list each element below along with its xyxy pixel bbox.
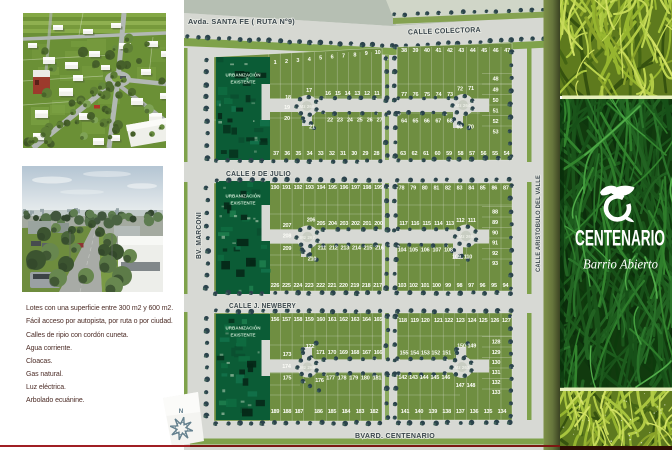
- svg-text:127: 127: [502, 318, 511, 324]
- svg-text:CALLE ARISTOBULO DEL VALLE: CALLE ARISTOBULO DEL VALLE: [535, 175, 542, 272]
- svg-text:53: 53: [493, 130, 499, 136]
- svg-text:132: 132: [492, 380, 501, 386]
- svg-text:96: 96: [480, 283, 486, 289]
- svg-text:15: 15: [335, 91, 341, 97]
- svg-text:86: 86: [491, 186, 497, 192]
- svg-text:91: 91: [492, 241, 498, 247]
- svg-text:156: 156: [271, 317, 280, 323]
- svg-text:140: 140: [415, 409, 424, 415]
- svg-text:170: 170: [328, 350, 337, 356]
- svg-text:190: 190: [271, 185, 280, 191]
- svg-text:102: 102: [409, 283, 418, 289]
- svg-text:159: 159: [305, 317, 314, 323]
- svg-text:30: 30: [351, 151, 357, 157]
- svg-text:40: 40: [424, 48, 430, 54]
- svg-text:38: 38: [401, 48, 407, 54]
- svg-text:152: 152: [431, 351, 440, 357]
- svg-text:205: 205: [317, 221, 326, 227]
- svg-text:139: 139: [429, 409, 438, 415]
- svg-text:51: 51: [493, 109, 499, 115]
- svg-text:186: 186: [314, 409, 323, 415]
- svg-text:19: 19: [284, 105, 290, 111]
- svg-text:27: 27: [377, 118, 383, 124]
- svg-text:39: 39: [413, 48, 419, 54]
- svg-text:Barrio Abierto: Barrio Abierto: [583, 257, 658, 272]
- svg-text:32: 32: [329, 151, 335, 157]
- svg-text:184: 184: [342, 409, 352, 415]
- svg-text:6: 6: [331, 55, 334, 61]
- svg-text:172: 172: [306, 344, 315, 350]
- svg-text:43: 43: [458, 48, 464, 54]
- svg-text:222: 222: [316, 283, 325, 289]
- svg-text:194: 194: [317, 185, 327, 191]
- svg-text:Mz 268: Mz 268: [300, 365, 316, 370]
- svg-text:206: 206: [307, 218, 316, 224]
- svg-text:3: 3: [296, 58, 299, 64]
- svg-text:153: 153: [421, 351, 430, 357]
- svg-text:72: 72: [457, 87, 463, 93]
- svg-text:93: 93: [492, 261, 498, 267]
- svg-text:101: 101: [421, 283, 430, 289]
- svg-text:87: 87: [503, 186, 509, 192]
- svg-text:143: 143: [409, 375, 418, 381]
- svg-text:177: 177: [326, 376, 335, 382]
- svg-text:220: 220: [339, 283, 348, 289]
- svg-text:105: 105: [409, 248, 418, 254]
- svg-text:142: 142: [398, 375, 407, 381]
- svg-text:134: 134: [498, 409, 508, 415]
- svg-text:106: 106: [421, 248, 430, 254]
- svg-text:137: 137: [456, 409, 465, 415]
- svg-text:126: 126: [491, 318, 500, 324]
- svg-text:31: 31: [340, 151, 346, 157]
- svg-text:213: 213: [341, 246, 350, 252]
- svg-text:166: 166: [374, 350, 383, 356]
- svg-text:104: 104: [398, 248, 408, 254]
- svg-text:124: 124: [468, 318, 478, 324]
- svg-text:118: 118: [399, 318, 407, 324]
- svg-text:168: 168: [351, 350, 360, 356]
- svg-text:218: 218: [362, 283, 371, 289]
- svg-text:122: 122: [445, 318, 454, 324]
- svg-text:196: 196: [340, 185, 349, 191]
- svg-text:110: 110: [464, 255, 472, 261]
- svg-text:EXISTENTE: EXISTENTE: [231, 333, 256, 338]
- svg-text:90: 90: [492, 230, 498, 236]
- svg-text:191: 191: [282, 185, 291, 191]
- svg-text:BV. MARCONI: BV. MARCONI: [196, 212, 203, 259]
- svg-text:8: 8: [353, 52, 356, 58]
- svg-text:69: 69: [457, 125, 463, 131]
- svg-text:52: 52: [493, 119, 499, 125]
- svg-text:131: 131: [492, 370, 501, 376]
- svg-text:195: 195: [328, 185, 337, 191]
- svg-text:174: 174: [282, 364, 292, 370]
- svg-text:171: 171: [316, 350, 325, 356]
- svg-text:203: 203: [340, 221, 349, 227]
- svg-text:202: 202: [351, 221, 360, 227]
- svg-text:216: 216: [375, 246, 384, 252]
- svg-text:66: 66: [424, 118, 430, 124]
- svg-text:5: 5: [319, 56, 322, 62]
- svg-text:217: 217: [373, 283, 382, 289]
- svg-text:78: 78: [399, 186, 405, 192]
- svg-text:92: 92: [492, 251, 498, 257]
- svg-text:169: 169: [339, 350, 348, 356]
- svg-text:97: 97: [468, 283, 474, 289]
- svg-text:65: 65: [413, 118, 419, 124]
- svg-text:115: 115: [423, 221, 431, 227]
- svg-text:163: 163: [351, 317, 360, 323]
- svg-text:100: 100: [432, 283, 441, 289]
- svg-text:EXISTENTE: EXISTENTE: [231, 201, 256, 206]
- svg-text:146: 146: [442, 375, 451, 381]
- svg-text:67: 67: [435, 118, 441, 124]
- svg-text:198: 198: [363, 185, 372, 191]
- svg-text:CALLE J. NEWBERY: CALLE J. NEWBERY: [229, 301, 296, 310]
- svg-text:79: 79: [410, 186, 416, 192]
- svg-text:210: 210: [308, 257, 317, 263]
- svg-text:215: 215: [364, 246, 373, 252]
- svg-text:36: 36: [284, 151, 290, 157]
- svg-text:211: 211: [318, 246, 326, 252]
- svg-text:16: 16: [325, 91, 331, 97]
- svg-text:33: 33: [318, 151, 324, 157]
- svg-text:73: 73: [447, 92, 453, 98]
- svg-text:22: 22: [327, 118, 333, 124]
- svg-text:56: 56: [481, 151, 487, 157]
- svg-text:185: 185: [328, 409, 337, 415]
- svg-text:50: 50: [493, 98, 499, 104]
- svg-text:9: 9: [365, 51, 368, 57]
- svg-text:167: 167: [362, 350, 371, 356]
- svg-text:162: 162: [339, 317, 348, 323]
- svg-text:N: N: [179, 408, 184, 415]
- svg-text:148: 148: [467, 383, 476, 389]
- svg-text:71: 71: [468, 86, 474, 92]
- svg-text:145: 145: [431, 375, 440, 381]
- svg-text:Avda. SANTA FE ( RUTA Nº9): Avda. SANTA FE ( RUTA Nº9): [188, 17, 295, 26]
- svg-text:209: 209: [283, 246, 292, 252]
- svg-text:155: 155: [400, 351, 409, 357]
- svg-text:EXISTENTE: EXISTENTE: [231, 80, 256, 85]
- svg-text:201: 201: [363, 221, 372, 227]
- svg-text:221: 221: [328, 283, 337, 289]
- svg-text:Mz 264: Mz 264: [455, 103, 471, 108]
- svg-text:107: 107: [433, 248, 442, 254]
- svg-text:28: 28: [374, 151, 380, 157]
- svg-text:2: 2: [285, 59, 288, 65]
- svg-text:42: 42: [447, 48, 453, 54]
- svg-text:BVARD. CENTENARIO: BVARD. CENTENARIO: [355, 431, 435, 440]
- svg-text:25: 25: [357, 118, 363, 124]
- svg-text:158: 158: [294, 317, 303, 323]
- svg-text:59: 59: [446, 151, 452, 157]
- svg-text:178: 178: [338, 376, 347, 382]
- svg-text:Mz 265: Mz 265: [458, 234, 474, 239]
- svg-text:147: 147: [456, 383, 465, 389]
- svg-text:208: 208: [283, 234, 292, 240]
- svg-text:55: 55: [492, 151, 498, 157]
- svg-text:182: 182: [370, 409, 379, 415]
- svg-text:181: 181: [373, 376, 382, 382]
- svg-text:89: 89: [492, 220, 498, 226]
- svg-text:CENTENARIO: CENTENARIO: [575, 226, 665, 251]
- svg-text:175: 175: [283, 376, 292, 382]
- svg-text:129: 129: [492, 350, 501, 356]
- svg-text:165: 165: [374, 317, 383, 323]
- svg-text:77: 77: [401, 92, 407, 98]
- svg-text:29: 29: [363, 151, 369, 157]
- svg-text:109: 109: [452, 255, 461, 261]
- svg-text:164: 164: [362, 317, 372, 323]
- svg-text:48: 48: [493, 77, 499, 83]
- svg-text:75: 75: [424, 92, 430, 98]
- svg-text:116: 116: [411, 221, 419, 227]
- svg-text:23: 23: [337, 118, 343, 124]
- svg-text:113: 113: [446, 221, 454, 227]
- svg-text:193: 193: [305, 185, 314, 191]
- svg-text:133: 133: [492, 390, 501, 396]
- svg-text:154: 154: [410, 351, 420, 357]
- svg-text:214: 214: [352, 246, 362, 252]
- svg-text:58: 58: [458, 151, 464, 157]
- svg-text:17: 17: [306, 88, 312, 94]
- svg-text:125: 125: [479, 318, 488, 324]
- svg-text:1: 1: [274, 60, 277, 66]
- svg-text:11: 11: [374, 91, 380, 97]
- svg-text:41: 41: [436, 48, 442, 54]
- svg-text:46: 46: [493, 48, 499, 54]
- svg-text:128: 128: [492, 340, 501, 346]
- svg-text:114: 114: [434, 221, 443, 227]
- svg-text:Mz 263: Mz 263: [454, 365, 470, 370]
- svg-text:138: 138: [442, 409, 451, 415]
- svg-text:47: 47: [504, 48, 510, 54]
- svg-text:160: 160: [317, 317, 326, 323]
- svg-text:21: 21: [309, 125, 315, 131]
- svg-text:81: 81: [433, 186, 439, 192]
- svg-text:35: 35: [295, 151, 301, 157]
- svg-text:207: 207: [283, 223, 292, 229]
- svg-text:121: 121: [434, 318, 443, 324]
- svg-text:68: 68: [447, 118, 453, 124]
- svg-text:135: 135: [484, 409, 493, 415]
- svg-text:76: 76: [413, 92, 419, 98]
- svg-text:99: 99: [445, 283, 451, 289]
- svg-text:188: 188: [283, 409, 292, 415]
- svg-text:62: 62: [412, 151, 418, 157]
- svg-text:183: 183: [356, 409, 365, 415]
- svg-text:85: 85: [480, 186, 486, 192]
- svg-text:223: 223: [305, 283, 314, 289]
- svg-text:161: 161: [328, 317, 337, 323]
- svg-text:103: 103: [398, 283, 407, 289]
- svg-text:200: 200: [374, 221, 383, 227]
- svg-text:Mz 266: Mz 266: [299, 104, 315, 109]
- svg-text:197: 197: [351, 185, 360, 191]
- svg-text:141: 141: [401, 409, 410, 415]
- svg-text:7: 7: [342, 53, 345, 59]
- svg-text:Mz 267: Mz 267: [300, 235, 316, 240]
- svg-text:83: 83: [457, 186, 463, 192]
- svg-text:45: 45: [481, 48, 487, 54]
- svg-text:224: 224: [294, 283, 304, 289]
- svg-text:225: 225: [282, 283, 291, 289]
- svg-text:12: 12: [364, 91, 370, 97]
- svg-text:18: 18: [285, 95, 291, 101]
- svg-text:60: 60: [435, 151, 441, 157]
- svg-text:98: 98: [457, 283, 463, 289]
- svg-text:123: 123: [456, 318, 465, 324]
- svg-text:70: 70: [468, 125, 474, 131]
- svg-text:117: 117: [399, 221, 407, 227]
- svg-text:149: 149: [468, 343, 477, 349]
- svg-text:80: 80: [422, 186, 428, 192]
- svg-text:130: 130: [492, 360, 501, 366]
- svg-text:219: 219: [351, 283, 360, 289]
- svg-text:82: 82: [445, 186, 451, 192]
- svg-text:157: 157: [282, 317, 291, 323]
- svg-text:180: 180: [361, 376, 370, 382]
- svg-text:173: 173: [283, 352, 292, 358]
- svg-text:150: 150: [457, 343, 466, 349]
- svg-text:212: 212: [329, 246, 338, 252]
- svg-text:26: 26: [367, 118, 373, 124]
- svg-text:176: 176: [315, 378, 324, 384]
- svg-text:13: 13: [354, 91, 360, 97]
- svg-text:199: 199: [374, 185, 383, 191]
- svg-text:63: 63: [400, 151, 406, 157]
- svg-text:120: 120: [421, 318, 430, 324]
- svg-text:204: 204: [328, 221, 338, 227]
- svg-text:179: 179: [349, 376, 358, 382]
- svg-text:57: 57: [469, 151, 475, 157]
- svg-text:CALLE 9 DE JULIO: CALLE 9 DE JULIO: [226, 169, 291, 178]
- svg-text:192: 192: [294, 185, 303, 191]
- svg-text:88: 88: [492, 210, 498, 216]
- svg-text:URBANIZACIÓN: URBANIZACIÓN: [226, 192, 262, 199]
- svg-text:111: 111: [468, 218, 476, 224]
- svg-text:10: 10: [375, 50, 381, 56]
- svg-text:226: 226: [271, 283, 280, 289]
- svg-text:189: 189: [271, 409, 280, 415]
- svg-text:144: 144: [420, 375, 430, 381]
- svg-text:49: 49: [493, 87, 499, 93]
- svg-text:61: 61: [423, 151, 429, 157]
- svg-text:108: 108: [444, 248, 453, 254]
- svg-text:112: 112: [456, 218, 464, 224]
- svg-text:119: 119: [410, 318, 418, 324]
- svg-text:136: 136: [470, 409, 479, 415]
- svg-text:URBANIZACIÓN: URBANIZACIÓN: [226, 71, 262, 78]
- svg-text:187: 187: [295, 409, 304, 415]
- svg-text:20: 20: [284, 116, 290, 122]
- svg-text:151: 151: [442, 351, 451, 357]
- svg-text:URBANIZACIÓN: URBANIZACIÓN: [226, 324, 262, 331]
- svg-text:95: 95: [491, 283, 497, 289]
- svg-text:37: 37: [273, 151, 279, 157]
